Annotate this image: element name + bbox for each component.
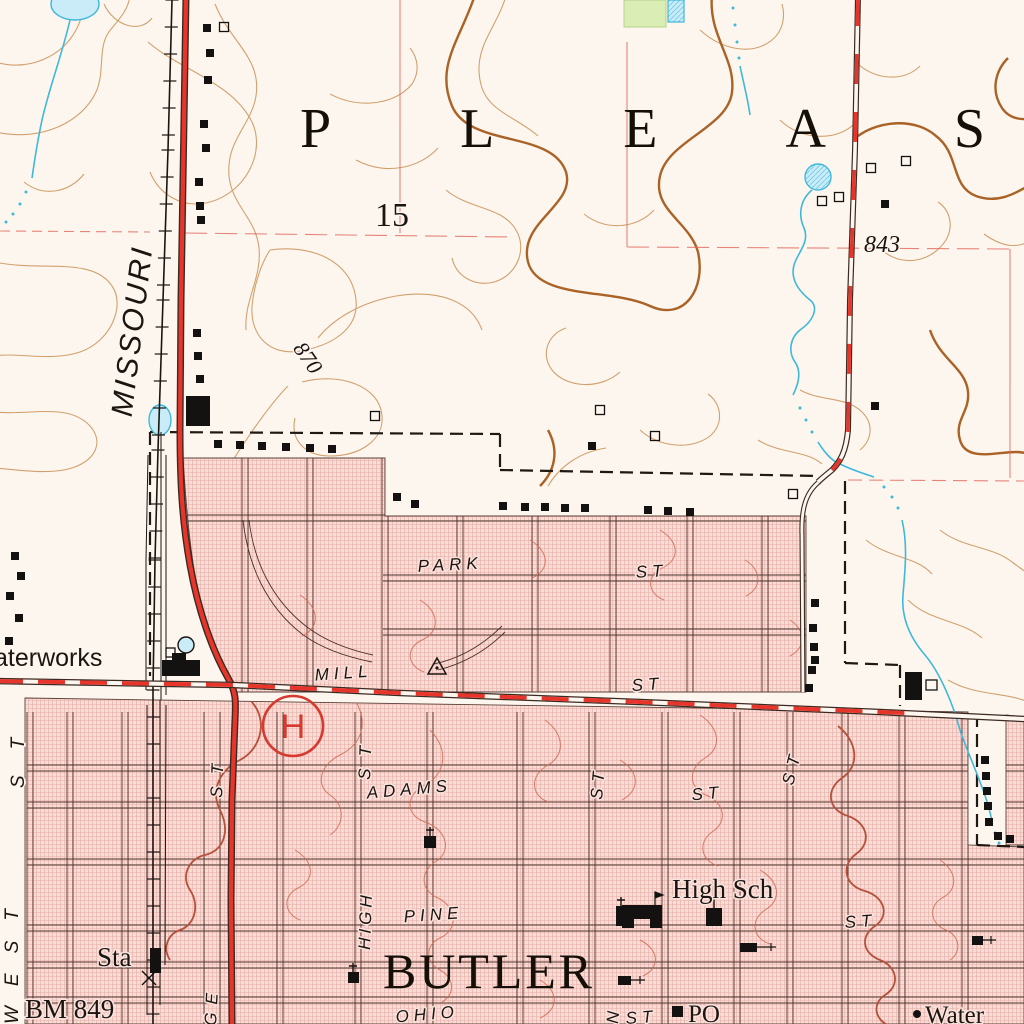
- building: [236, 441, 244, 449]
- building: [6, 592, 14, 600]
- building: [588, 442, 596, 450]
- building: [871, 402, 879, 410]
- mill-label: MILL: [314, 662, 373, 685]
- large-building: [905, 672, 922, 700]
- building: [1006, 835, 1014, 843]
- building: [202, 144, 210, 152]
- building: [196, 375, 204, 383]
- ohio-st-label: ST: [625, 1007, 658, 1024]
- high-st-st-label: ST: [355, 734, 376, 780]
- large-building: [186, 396, 210, 426]
- building: [664, 507, 672, 515]
- st-label-mid: ST: [587, 765, 609, 800]
- station-label: Sta: [97, 942, 132, 972]
- building: [282, 443, 290, 451]
- building: [983, 787, 991, 795]
- building: [810, 643, 818, 651]
- building: [200, 120, 208, 128]
- church-building: [424, 836, 436, 848]
- topo-map: P L E A S 15 BUTLER MISSOURI 843 870 BM …: [0, 0, 1024, 1024]
- building: [811, 599, 819, 607]
- church-building: [348, 972, 359, 983]
- building: [809, 624, 817, 632]
- building: [985, 818, 993, 826]
- topo-map-canvas: P L E A S 15 BUTLER MISSOURI 843 870 BM …: [0, 0, 1024, 1024]
- building: [206, 49, 214, 57]
- building: [808, 666, 816, 674]
- building: [15, 614, 23, 622]
- benchmark-label: BM 849: [25, 994, 114, 1024]
- building: [195, 178, 203, 186]
- building: [306, 444, 314, 452]
- west-st-label: WEST: [2, 889, 23, 1024]
- building: [811, 656, 819, 664]
- railroad-station-building: [150, 948, 161, 973]
- building: [258, 442, 266, 450]
- building: [328, 445, 336, 453]
- building: [393, 493, 401, 501]
- water-tank: [178, 637, 194, 653]
- pond: [805, 164, 831, 190]
- city-name-label: BUTLER: [383, 943, 593, 999]
- west-st-st-label: ST: [8, 712, 29, 788]
- building: [994, 832, 1002, 840]
- building: [11, 552, 19, 560]
- hospital-symbol-letter: H: [281, 708, 306, 746]
- park-st-label: ST: [635, 561, 668, 582]
- building: [411, 500, 419, 508]
- building: [644, 506, 652, 514]
- section-number-label: 15: [375, 197, 409, 234]
- waterworks-building: [162, 660, 200, 676]
- building: [581, 504, 589, 512]
- building: [214, 440, 222, 448]
- building: [541, 503, 549, 511]
- high-school-label: High Sch: [672, 874, 774, 904]
- building: [203, 24, 211, 32]
- building: [881, 200, 889, 208]
- building: [197, 216, 205, 224]
- building: [204, 76, 212, 84]
- waterworks-label: aterworks: [0, 644, 102, 672]
- building: [686, 508, 694, 516]
- building: [499, 502, 507, 510]
- building: [196, 202, 204, 210]
- building: [17, 572, 25, 580]
- building: [521, 503, 529, 511]
- building: [193, 329, 201, 337]
- spot-elevation-843-label: 843: [864, 232, 900, 258]
- building: [981, 756, 989, 764]
- mill-st-label: ST: [631, 674, 664, 695]
- orange-st-partial-label: GE: [201, 985, 222, 1024]
- building-with-tower: [740, 943, 757, 952]
- building: [805, 684, 813, 692]
- park-label: PARK: [417, 554, 483, 576]
- adams-st-label: ST: [691, 783, 724, 805]
- high-st-label: HIGH: [355, 891, 376, 950]
- school-building: [706, 908, 722, 926]
- main-st-partial-label: N: [603, 1010, 623, 1024]
- hwy-street-st-label: ST: [207, 752, 228, 798]
- water-tower-label: Water: [925, 1002, 985, 1024]
- water-tower-dot: [913, 1010, 921, 1018]
- post-office-building: [672, 1006, 683, 1017]
- building: [561, 504, 569, 512]
- building: [984, 802, 992, 810]
- building: [194, 352, 202, 360]
- post-office-label: PO: [688, 1001, 720, 1024]
- building: [982, 772, 990, 780]
- pine-st-label: ST: [844, 911, 877, 932]
